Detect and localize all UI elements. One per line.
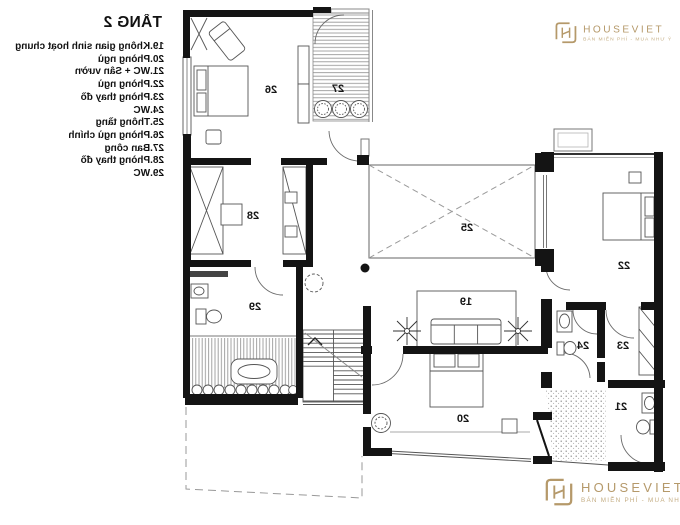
toilet-21	[637, 420, 650, 434]
room-label-19: 19	[460, 296, 472, 308]
room-label-20: 20	[457, 413, 469, 425]
stair-treads-right	[334, 334, 365, 394]
sliding-door-panel	[298, 46, 309, 84]
houseviet-brand: HOUSEVIET	[581, 480, 680, 495]
dashed-roof-outline	[186, 407, 362, 498]
island-28	[221, 204, 242, 225]
door-wc24-top	[573, 310, 597, 334]
houseviet-mark-icon	[544, 477, 574, 507]
closet-corner-26	[191, 18, 207, 50]
door-wc21	[621, 435, 650, 464]
pillow	[645, 218, 654, 237]
room-label-27: 27	[332, 83, 344, 95]
balcony-planters	[315, 101, 368, 118]
houseviet-tagline: BÁN MIỄN PHÍ - MUA NHƯ Ý	[581, 497, 680, 504]
floor-plan: 19 20 21 22 23 24 25 26 27 28 29	[0, 0, 680, 525]
sofa-19	[431, 319, 501, 344]
houseviet-brand: HOUSEVIET	[583, 23, 672, 35]
sliding-door-panel	[298, 84, 309, 123]
hall-table	[305, 274, 323, 292]
side-table-20	[502, 419, 517, 433]
ac-unit	[554, 129, 592, 151]
staircase	[303, 330, 364, 402]
pillow	[197, 70, 206, 90]
vanity-29	[187, 271, 228, 277]
sloped-bottom-wall	[389, 451, 531, 462]
door-room20	[372, 354, 403, 385]
houseviet-logo-bottom: HOUSEVIET BÁN MIỄN PHÍ - MUA NHƯ Ý	[544, 477, 680, 507]
stair-treads-left	[303, 334, 334, 366]
pillow	[645, 197, 654, 216]
pillow	[458, 354, 479, 367]
room-label-29: 29	[249, 301, 261, 313]
room-label-25: 25	[461, 222, 473, 234]
plant	[504, 317, 532, 345]
void-cross	[369, 165, 535, 258]
room-label-28: 28	[247, 210, 259, 222]
void-glass-wall	[544, 175, 547, 248]
garden-stipple	[546, 389, 606, 461]
toilet-29-tank	[196, 309, 206, 324]
room-label-26: 26	[265, 84, 277, 96]
nightstand-22	[629, 172, 641, 183]
houseviet-text: HOUSEVIET BÁN MIỄN PHÍ - MUA NHƯ Ý	[583, 23, 672, 42]
houseviet-text: HOUSEVIET BÁN MIỄN PHÍ - MUA NHƯ Ý	[581, 480, 680, 504]
toilet-29	[207, 310, 222, 323]
houseviet-logo-top: HOUSEVIET BÁN MIỄN PHÍ - MUA NHƯ Ý	[554, 21, 672, 44]
pillow	[197, 93, 206, 112]
stool-26	[206, 130, 221, 144]
chaise-26	[208, 21, 246, 62]
stool	[285, 192, 297, 203]
balcony-edge	[369, 10, 373, 122]
pillow	[434, 354, 455, 367]
hall-bottom-edge	[303, 401, 368, 405]
pebble-row	[192, 385, 297, 395]
room-label-24: 24	[576, 340, 589, 352]
plant	[393, 317, 421, 345]
furniture	[187, 18, 657, 434]
ac-unit-inner	[558, 133, 588, 147]
door-wc24-bottom	[564, 353, 590, 378]
room-label-23: 23	[617, 340, 629, 352]
houseviet-tagline: BÁN MIỄN PHÍ - MUA NHƯ Ý	[583, 37, 672, 42]
hall-window	[361, 139, 369, 156]
sloped-bottom-right	[552, 461, 608, 465]
toilet-24	[564, 342, 576, 355]
toilet-24-tank	[557, 342, 564, 355]
door-room23	[606, 310, 634, 338]
floorplan-page: TẦNG 2 19.Không gian sinh hoạt chung 20.…	[0, 0, 680, 525]
stool	[285, 226, 297, 237]
door-hall-balcony	[329, 131, 360, 161]
brace-wall	[537, 420, 549, 456]
houseviet-mark-icon	[554, 21, 577, 44]
room-label-22: 22	[618, 260, 630, 272]
door-wc29	[255, 267, 283, 295]
room-label-21: 21	[615, 401, 627, 413]
balcony-top-rail	[331, 9, 369, 13]
